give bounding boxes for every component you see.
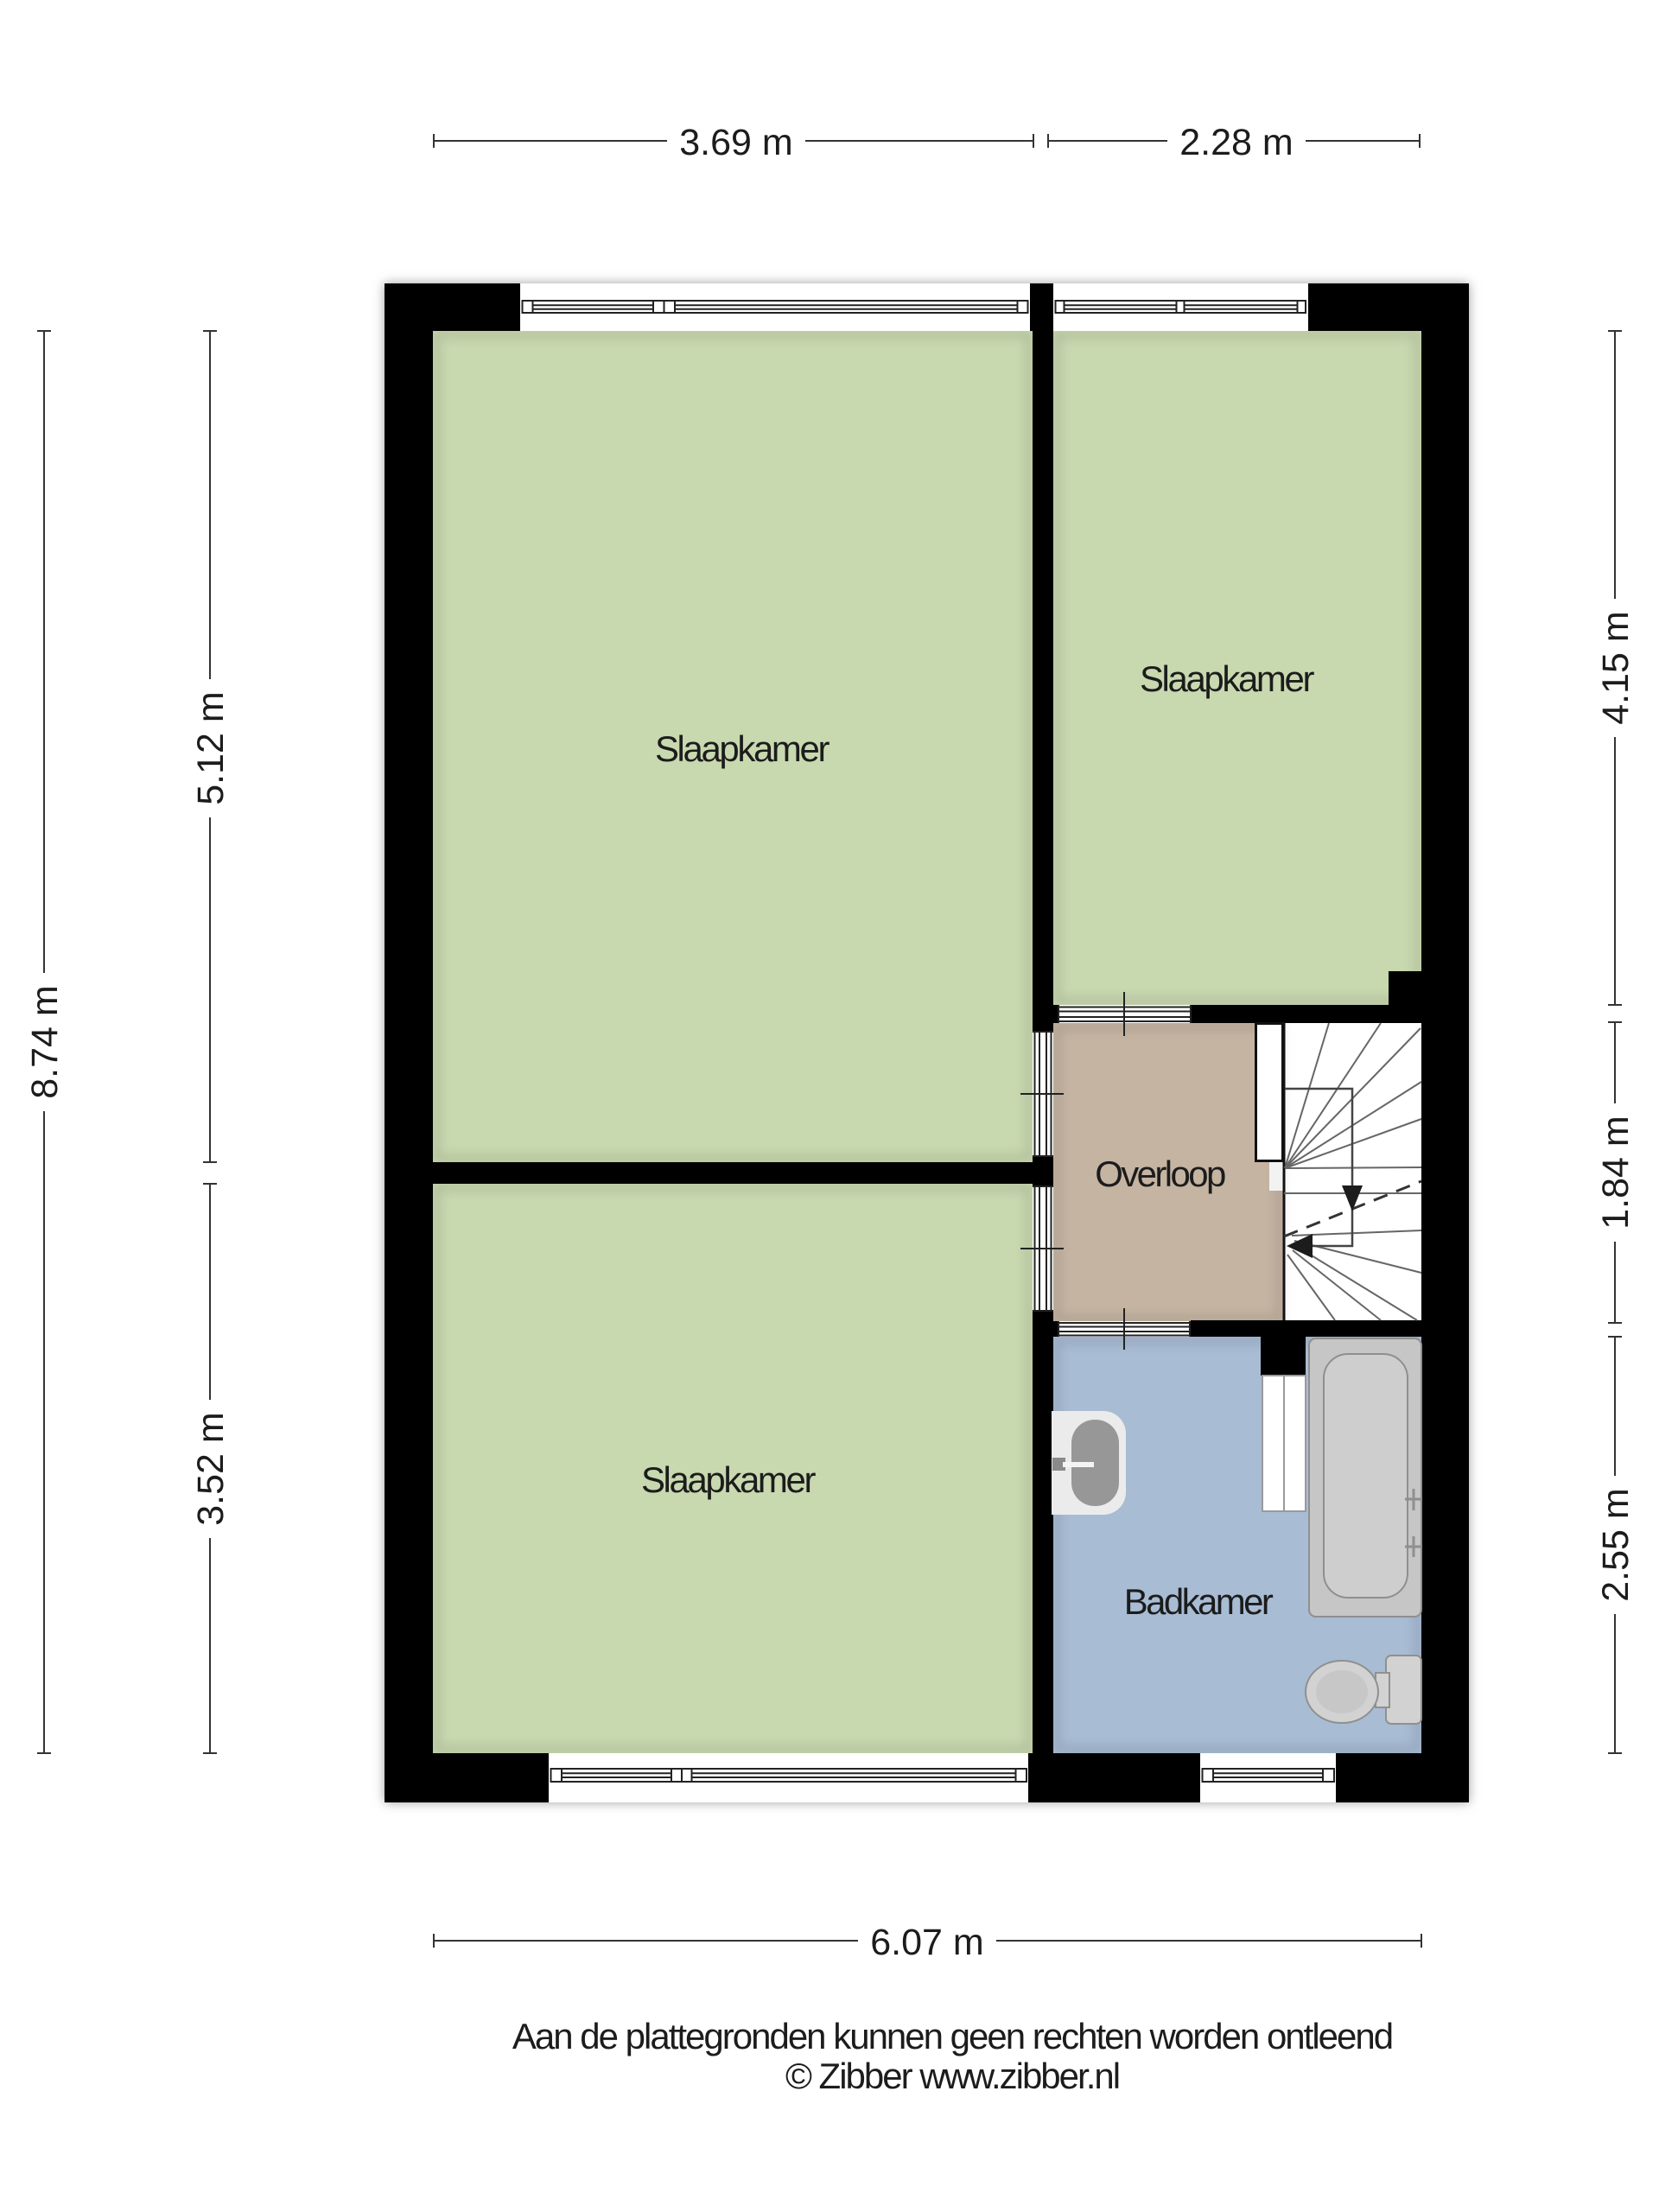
svg-text:3.69 m: 3.69 m bbox=[679, 122, 792, 163]
svg-text:© Zibber www.zibber.nl: © Zibber www.zibber.nl bbox=[785, 2056, 1119, 2096]
svg-text:5.12 m: 5.12 m bbox=[190, 691, 232, 804]
svg-text:2.28 m: 2.28 m bbox=[1179, 122, 1293, 163]
svg-text:Aan de plattegronden kunnen ge: Aan de plattegronden kunnen geen rechten… bbox=[512, 2016, 1392, 2056]
svg-text:3.52 m: 3.52 m bbox=[190, 1412, 232, 1525]
svg-text:Overloop: Overloop bbox=[1095, 1154, 1225, 1194]
svg-text:Slaapkamer: Slaapkamer bbox=[641, 1459, 817, 1500]
svg-text:6.07 m: 6.07 m bbox=[870, 1922, 983, 1963]
svg-text:1.84 m: 1.84 m bbox=[1595, 1116, 1637, 1229]
svg-text:2.55 m: 2.55 m bbox=[1595, 1488, 1637, 1601]
svg-text:4.15 m: 4.15 m bbox=[1595, 611, 1637, 724]
svg-text:Slaapkamer: Slaapkamer bbox=[655, 728, 830, 769]
svg-text:Badkamer: Badkamer bbox=[1124, 1581, 1274, 1622]
svg-text:8.74 m: 8.74 m bbox=[24, 985, 66, 1098]
svg-text:Slaapkamer: Slaapkamer bbox=[1140, 658, 1315, 699]
